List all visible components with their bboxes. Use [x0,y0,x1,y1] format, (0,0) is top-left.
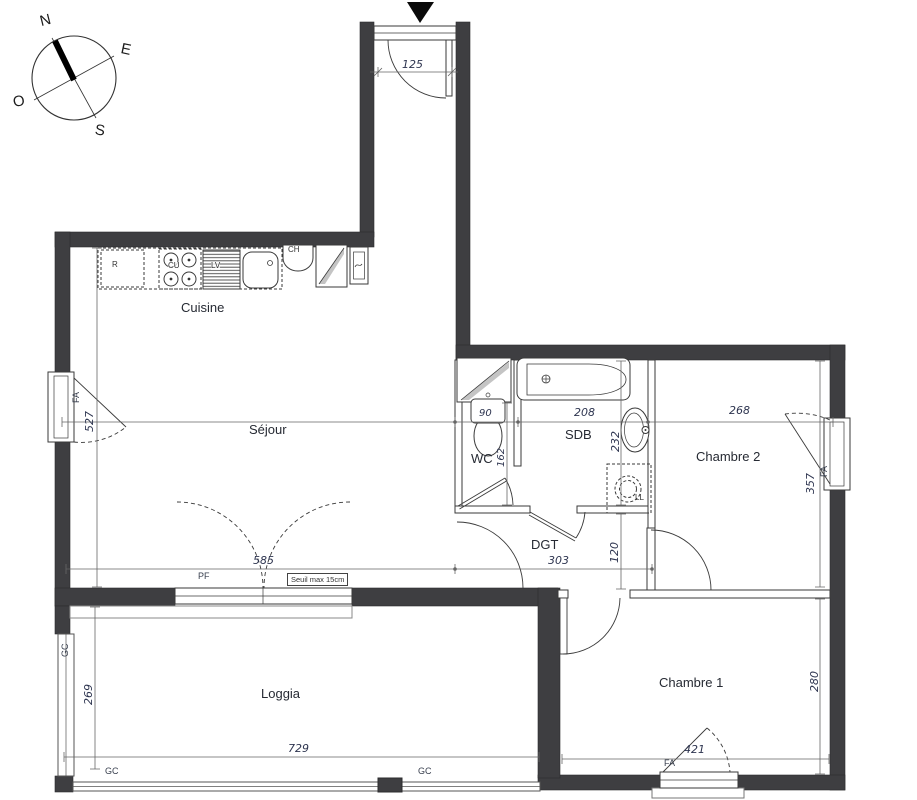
guardrail-label-bottom-1: GC [105,767,119,776]
toilet [471,393,505,456]
room-label-sejour: Séjour [249,423,287,436]
room-label-dgt: DGT [531,538,558,551]
wall-corridor-left [360,22,374,237]
loggia-guardrails [58,634,540,792]
fridge-label: R [112,261,118,269]
dim-chambre1-height: 280 [809,671,820,692]
interior-doors [457,478,711,654]
door-chambre2 [651,530,711,590]
threshold-note: Seuil max 15cm [287,573,348,586]
washing-machine-label: LL [635,494,644,502]
wall-loggia-left-stub [55,606,70,634]
dim-chambre2-height: 357 [805,473,816,494]
dim-dgt-width: 303 [548,555,569,566]
wc-washbasin [457,358,511,402]
wall-loggia-right [538,588,560,778]
wall-right [830,345,845,790]
compass-rose [32,36,116,120]
room-label-wc: WC [471,452,493,465]
window-label-fa-left: FA [72,392,81,403]
dim-sejour-height: 527 [84,411,95,432]
partition-wc-bottom [455,506,530,513]
dim-entrance: 125 [402,59,423,70]
door-chambre1 [560,598,620,654]
dim-chambre2-width: 268 [729,405,750,416]
dishwasher-label: LV [211,262,220,270]
compass-south-label: S [94,122,106,138]
cooktop-label: CU [168,262,180,270]
partition-chambre1-top-stub [558,590,568,598]
electric-panel [350,247,368,284]
dimension-lines [62,67,833,774]
dim-sdb-height: 232 [610,431,621,452]
dim-sdb-width: 208 [574,407,595,418]
room-label-chambre1: Chambre 1 [659,676,723,689]
compass-needle [55,41,74,80]
room-label-sdb: SDB [565,428,592,441]
water-heater-label: CH [288,246,300,254]
room-label-chambre2: Chambre 2 [696,450,760,463]
dim-sejour-width: 585 [253,555,274,566]
window-fa-right [785,413,850,490]
wall-sejour-bottom-left [55,588,175,606]
guardrail-label-bottom-2: GC [418,767,432,776]
french-door-label: PF [198,572,210,581]
window-label-fa-right: FA [820,466,829,477]
room-label-cuisine: Cuisine [181,301,224,314]
dim-loggia-width: 729 [288,743,309,754]
wall-sejour-bottom-right [352,588,558,606]
dim-loggia-height: 269 [83,684,94,705]
fridge [101,250,144,287]
door-wc [458,478,513,509]
dishwasher [203,250,240,289]
wall-top-right [456,345,845,360]
exterior-walls [55,22,845,792]
partition-chambre1-top [630,590,830,598]
guardrail-label-left: GC [61,644,70,658]
chambre2-door-leaf [647,528,655,590]
wall-corridor-right [456,22,470,360]
bathtub [517,358,630,400]
fixtures [98,245,651,513]
window-label-fa-bottom: FA [664,759,675,768]
wall-loggia-corner [55,776,73,792]
room-label-loggia: Loggia [261,687,300,700]
dim-wc-width: 90 [479,409,492,419]
dim-chambre1-width: 421 [684,744,705,755]
door-sejour-dgt [457,522,523,588]
sdb-sink [621,408,649,452]
kitchen-sink [243,252,278,288]
dim-dgt-height: 120 [609,542,620,563]
floor-plan: N E O S Cuisine Séjour WC SDB DGT Chambr… [0,0,917,800]
floorplan-drawing [0,0,917,800]
utility-panel [316,245,347,287]
entrance-arrow-icon [407,2,434,23]
partition-sdb-bottom [577,506,651,513]
dim-wc-height: 162 [497,448,507,467]
